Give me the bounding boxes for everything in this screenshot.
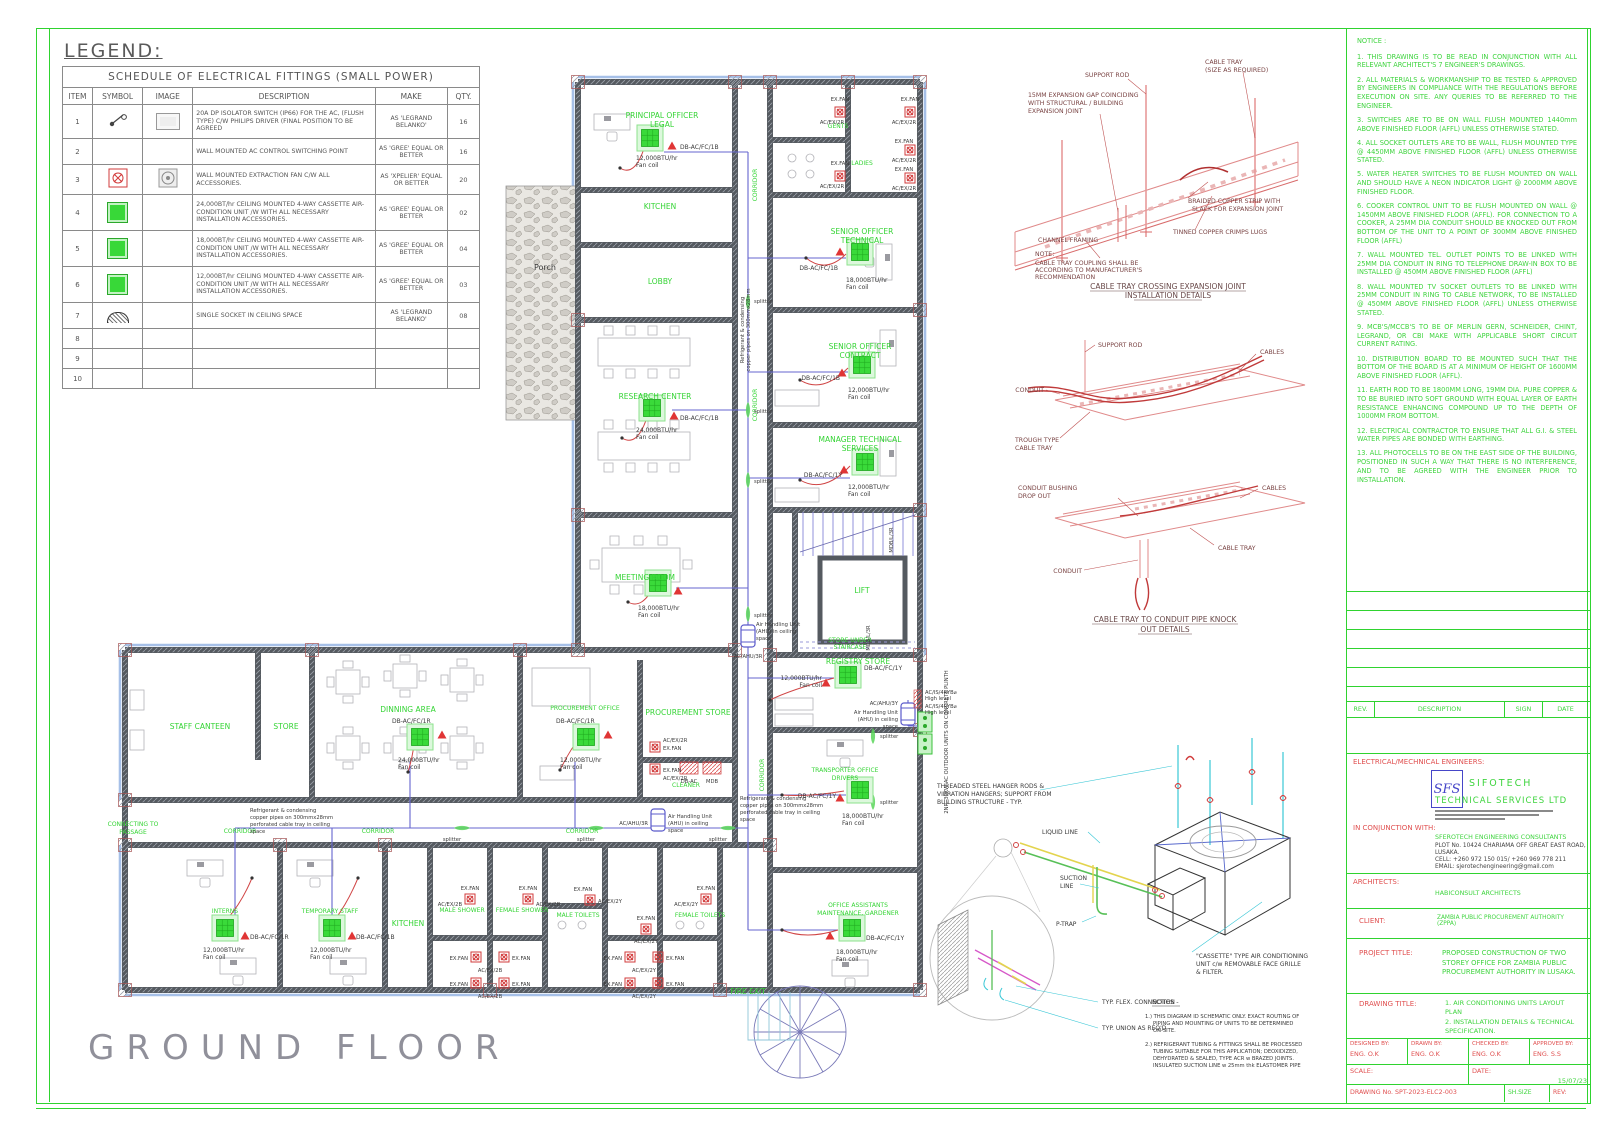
drawing-title-block: DRAWING TITLE: 1. AIR CONDITIONING UNITS… — [1347, 993, 1590, 1038]
room-label-connecting-2: PASSAGE — [119, 829, 147, 836]
d3-n1b: PIPING AND MOUNTING OF UNITS TO BE DETER… — [1153, 1021, 1293, 1027]
tag-splitter: splitter — [754, 479, 773, 485]
tag-acex: AC/EX/2R — [820, 120, 845, 126]
room-label-meeting: MEETING ROOM — [615, 573, 675, 582]
room-label-kitchen-bottom: KITCHEN — [392, 919, 425, 928]
tag-mdb-board: MDB — [706, 779, 718, 785]
tag-fancoil: Fan coil — [848, 491, 871, 498]
detail-cable-tray-expansion: SUPPORT ROD CABLE TRAY (SIZE AS REQUIRED… — [1015, 59, 1298, 300]
room-label-corridor-h3: CORRIDOR — [566, 828, 599, 835]
room-label-manager-1: MANAGER TECHNICAL — [819, 435, 903, 444]
tag-db: DB-AC/FC/1B — [680, 415, 719, 422]
tag-acex: AC/EX/2Y — [634, 939, 659, 945]
tag-btu: 18,000BTU/hr — [846, 277, 888, 284]
d2-cable-tray: CABLE TRAY — [1218, 545, 1256, 552]
architects-value: HABICONSULT ARCHITECTS — [1435, 890, 1521, 897]
tag-btu: 12,000BTU/hr — [310, 947, 352, 954]
tag-exfan: EX.FAN — [450, 956, 469, 962]
project-block: PROJECT TITLE: PROPOSED CONSTRUCTION OF … — [1347, 938, 1590, 993]
tag-mdb: MDB/L/3R — [866, 625, 872, 651]
tag-fancoil: Fan coil — [636, 162, 659, 169]
notice-item: 11. EARTH ROD TO BE 1800MM LONG, 19MM DI… — [1357, 386, 1577, 421]
isolator-switch-image — [156, 113, 180, 130]
notice-item: 2. ALL MATERIALS & WORKMANSHIP TO BE TES… — [1357, 76, 1577, 111]
tag-exfan: EX.FAN — [663, 768, 682, 774]
tag-fancoil: Fan coil — [846, 284, 869, 291]
tag-db: DB-AC/FC/1B — [356, 934, 395, 941]
tag-ahu-line: (AHU) in ceiling — [756, 629, 796, 635]
tag-btu: 24,000BTU/hr — [636, 427, 678, 434]
tag-splitter: splitter — [880, 800, 899, 806]
legend-row-7: 7 SINGLE SOCKET IN CEILING SPACE AS 'LEG… — [63, 303, 480, 329]
tag-btu: 18,000BTU/hr — [836, 949, 878, 956]
tag-ahu-ref: AC/AHU/3Y — [870, 701, 899, 707]
notice-title: NOTICE : — [1357, 37, 1577, 46]
engineers-fineprint-bar — [1435, 814, 1539, 816]
tag-ref-note: copper pipes on 300mmx28mm — [250, 815, 333, 821]
d1-braid1: BRAIDED COPPER STRIP WITH — [1188, 198, 1281, 205]
tag-acex: AC/EX/2B — [478, 994, 503, 1000]
title-block-column: NOTICE : 1. THIS DRAWING IS TO BE READ I… — [1346, 28, 1591, 1104]
d3-hanger3: BUILDING STRUCTURE - TYP. — [937, 799, 1022, 806]
d1-support-rod: SUPPORT ROD — [1085, 72, 1130, 79]
tag-ahu-line: Air Handling Unit — [668, 814, 712, 820]
tag-acex: AC/EX/2B — [478, 968, 503, 974]
d3-n2c: DEHYDRATED & SEALED, TYPE ACR w BRAZED J… — [1153, 1056, 1294, 1062]
d3-cassette1: "CASSETTE" TYPE AIR CONDITIONING — [1196, 953, 1308, 960]
tag-splitter: splitter — [709, 837, 728, 843]
d3-notes-title: NOTES - — [1152, 998, 1179, 1006]
tag-fancoil: Fan coil — [799, 682, 822, 689]
legend-col-make: MAKE — [375, 88, 447, 105]
room-label-senior-contract-2: CONTRACT — [839, 351, 880, 360]
tag-btu: 12,000BTU/hr — [781, 675, 823, 682]
staircase — [800, 512, 915, 648]
legend-col-symbol: SYMBOL — [93, 88, 143, 105]
room-label-female-shower: FEMALE SHOWER — [496, 907, 549, 914]
tag-exfan: EX.FAN — [450, 982, 469, 988]
consultant-address1: PLOT No. 10424 CHARIAMA OFF GREAT EAST R… — [1435, 843, 1586, 849]
d3-cassette2: UNIT c/w REMOVABLE FACE GRILLE — [1196, 961, 1301, 968]
scale-date-row: SCALE: DATE:15/07/23 — [1347, 1064, 1590, 1084]
tag-db: DB-AC/FC/1B — [799, 265, 838, 272]
room-label-corridor-v3: CORRIDOR — [759, 759, 766, 792]
tag-exfan: EX.FAN — [512, 982, 531, 988]
project-label: PROJECT TITLE: — [1359, 949, 1413, 957]
room-label-dinning: DINNING AREA — [380, 705, 436, 714]
room-label-female-toilets: FEMALE TOILETS — [675, 912, 726, 919]
d1-cable-tray: CABLE TRAY — [1205, 59, 1243, 66]
room-label-ladies: LADIES — [851, 160, 873, 167]
room-label-senior-contract-1: SENIOR OFFICER — [829, 342, 892, 351]
tag-acex: AC/EX/2R — [892, 186, 917, 192]
detail-cassette-unit: THREADED STEEL HANGER RODS & VIBRATION H… — [930, 738, 1308, 1069]
tag-ref-note: Refrigerant & condensing — [250, 808, 316, 814]
room-label-male-shower: MALE SHOWER — [439, 907, 484, 914]
tag-ref-note: space — [250, 829, 265, 835]
tag-db: DB-AC/FC/1B — [801, 375, 840, 382]
legend-row-9: 9 — [63, 349, 480, 369]
legend-col-image: IMAGE — [143, 88, 193, 105]
approved-by-label: APPROVED BY: — [1533, 1041, 1587, 1047]
notice-item: 1. THIS DRAWING IS TO BE READ IN CONJUNC… — [1357, 53, 1577, 70]
d1-gap3: EXPANSION JOINT — [1028, 108, 1083, 115]
drawing-title-2: 2. INSTALLATION DETAILS & TECHNICAL SPEC… — [1445, 1018, 1580, 1036]
checked-by-label: CHECKED BY: — [1472, 1041, 1526, 1047]
room-label-transporter-2: DRIVERS — [832, 775, 859, 782]
tag-fancoil: Fan coil — [310, 954, 333, 961]
detail1-labels: SUPPORT ROD CABLE TRAY (SIZE AS REQUIRED… — [1028, 59, 1283, 300]
room-label-senior-technical-1: SENIOR OFFICER — [831, 227, 894, 236]
d3-n2d: INSULATED SUCTION LINE w 25mm thk ELASTO… — [1153, 1063, 1301, 1069]
tag-exfan: EX.FAN — [604, 982, 623, 988]
description-col: DESCRIPTION — [1375, 702, 1505, 718]
tag-fancoil: Fan coil — [848, 394, 871, 401]
d3-n2b: TUBING SUITABLE FOR THIS APPLICATION; DE… — [1152, 1049, 1298, 1055]
tag-exfan: EX.FAN — [604, 956, 623, 962]
room-label-porch: Porch — [534, 263, 556, 272]
notice-item: 7. WALL MOUNTED TEL. OUTLET POINTS TO BE… — [1357, 251, 1577, 277]
legend-table-title: SCHEDULE OF ELECTRICAL FITTINGS (SMALL P… — [63, 67, 480, 88]
drawn-by-label: DRAWN BY: — [1411, 1041, 1465, 1047]
revision-rows — [1347, 591, 1590, 701]
tag-ref-note: Refrigerant & condensing — [740, 796, 806, 802]
detail3-labels: THREADED STEEL HANGER RODS & VIBRATION H… — [936, 783, 1308, 1069]
d1-cable-tray2: (SIZE AS REQUIRED) — [1205, 67, 1268, 74]
legend-row-1: 1 20A DP ISOLATOR SWITCH (IP66) FOR THE … — [63, 105, 480, 139]
tag-acex: AC/EX/2R — [663, 738, 688, 744]
tag-ahu-line: (AHU) in ceiling — [668, 821, 708, 827]
legend-row-4: 4 24,000BT/hr CEILING MOUNTED 4-WAY CASS… — [63, 195, 480, 231]
tag-ahu-ref: AC/AHU/3R — [619, 821, 648, 827]
tag-ahu-line: space — [756, 636, 771, 642]
tag-btu: 12,000BTU/hr — [848, 484, 890, 491]
tag-exfan: EX.FAN — [519, 886, 538, 892]
tag-exfan: EX.FAN — [697, 886, 716, 892]
tag-btu: 24,000BTU/hr — [398, 757, 440, 764]
tag-exfan: EX.FAN — [461, 886, 480, 892]
notice-item: 5. WATER HEATER SWITCHES TO BE FLUSH MOU… — [1357, 170, 1577, 196]
tag-fancoil: Fan coil — [398, 764, 421, 771]
tag-db: DB-AC/FC/1Y — [804, 472, 842, 479]
tag-acex: AC/EX/2B — [438, 902, 463, 908]
tag-acex: AC/EX/2B — [536, 902, 561, 908]
room-label-canteen: STAFF CANTEEN — [170, 722, 231, 731]
tag-exfan: EX.FAN — [574, 887, 593, 893]
tag-ahu-line: Air Handling Unit — [854, 710, 898, 716]
drawing-title-1: 1. AIR CONDITIONING UNITS LAYOUT PLAN — [1445, 999, 1580, 1017]
room-label-lobby: LOBBY — [648, 277, 673, 286]
tag-btu: 18,000BTU/hr — [638, 605, 680, 612]
tag-splitter: splitter — [880, 734, 899, 740]
d1-title1: CABLE TRAY CROSSING EXPANSION JOINT — [1090, 282, 1246, 291]
tag-db: DB-AC/FC/1Y — [864, 665, 902, 672]
notice-item: 6. COOKER CONTROL UNIT TO BE FLUSH MOUNT… — [1357, 202, 1577, 246]
d2-trough2: CABLE TRAY — [1015, 445, 1053, 452]
approved-by-value: ENG. S.S — [1533, 1050, 1587, 1058]
tag-acex: AC/EX/2R — [892, 120, 917, 126]
tag-ref-note-v: copper pipes on 300mmx28mm — [746, 288, 752, 371]
engineers-block: ELECTRICAL/MECHNICAL ENGINEERS: SFS SIFO… — [1347, 753, 1590, 873]
rev-label: REV: — [1553, 1089, 1587, 1096]
tag-btu: 12,000BTU/hr — [560, 757, 602, 764]
drawing-no-row: DRAWING No. SPT-2023-ELC2-003 SH.SIZE RE… — [1347, 1084, 1590, 1102]
d1-gap2: WITH STRUCTURAL / BUILDING — [1028, 100, 1124, 107]
tag-ahu-line: space — [668, 828, 683, 834]
d3-suction2: LINE — [1060, 883, 1074, 890]
client-value: ZAMBIA PUBLIC PROCUREMENT AUTHORITY (ZPP… — [1437, 915, 1582, 927]
designed-by-value: ENG. O.K — [1350, 1050, 1404, 1058]
tag-exfan: EX.FAN — [512, 956, 531, 962]
legend: LEGEND: SCHEDULE OF ELECTRICAL FITTINGS … — [62, 40, 480, 389]
sheet-size-label: SH.SIZE — [1508, 1089, 1546, 1096]
room-label-corridor-h2: CORRIDOR — [362, 828, 395, 835]
d3-hanger2: VIBRATION HANGERS; SUPPORT FROM — [937, 791, 1052, 798]
tag-db: DB-AC/FC/1B — [680, 144, 719, 151]
tag-exfan: EX.FAN — [666, 956, 685, 962]
room-label-lift: LIFT — [854, 586, 870, 595]
tag-ref-note: perforated cable tray in ceiling — [250, 822, 330, 828]
d2-cables: CABLES — [1260, 349, 1284, 356]
d2-conduit2: CONDUIT — [1053, 568, 1082, 575]
ceiling-socket-icon — [107, 312, 129, 323]
notice-item: 8. WALL MOUNTED TV SOCKET OUTLETS TO BE … — [1357, 283, 1577, 318]
legend-row-3: 3 WALL MOUNTED EXTRACTION FAN C/W ALL AC… — [63, 165, 480, 195]
engineers-name1: SIFOTECH — [1469, 778, 1532, 789]
d2-cables2: CABLES — [1262, 485, 1286, 492]
tag-exfan: EX.FAN — [831, 161, 850, 167]
architects-label: ARCHITECTS: — [1353, 878, 1399, 886]
legend-table: SCHEDULE OF ELECTRICAL FITTINGS (SMALL P… — [62, 66, 480, 389]
d3-hanger1: THREADED STEEL HANGER RODS & — [936, 783, 1044, 790]
tag-acex: AC/EX/2R — [820, 184, 845, 190]
legend-row-5: 5 18,000BT/hr CEILING MOUNTED 4-WAY CASS… — [63, 231, 480, 267]
conjunction-label: IN CONJUNCTION WITH: — [1353, 824, 1436, 832]
tag-acex: AC/EX/2Y — [632, 968, 657, 974]
tag-exfan: EX.FAN — [901, 97, 920, 103]
notice-item: 4. ALL SOCKET OUTLETS ARE TO BE WALL, FL… — [1357, 139, 1577, 165]
room-label-temp-staff: TEMPORARY STAFF — [301, 908, 359, 915]
client-block: CLIENT: ZAMBIA PUBLIC PROCUREMENT AUTHOR… — [1347, 908, 1590, 938]
legend-row-6: 6 12,000BT/hr CEILING MOUNTED 4-WAY CASS… — [63, 267, 480, 303]
porch-stonework — [506, 186, 578, 420]
tag-splitter: splitter — [754, 299, 773, 305]
tag-btu: 12,000BTU/hr — [848, 387, 890, 394]
engineers-fineprint-bar — [1435, 818, 1505, 820]
consultant-cell: CELL: +260 972 150 015/ +260 969 778 211 — [1435, 857, 1566, 863]
d2-bush1: CONDUIT BUSHING — [1018, 485, 1077, 492]
legend-row-10: 10 — [63, 369, 480, 389]
room-label-connecting-1: CONNECTING TO — [108, 821, 159, 828]
tag-exfan: EX.FAN — [895, 167, 914, 173]
designed-by-label: DESIGNED BY: — [1350, 1041, 1404, 1047]
tag-exfan: EX.FAN — [666, 982, 685, 988]
d3-suction1: SUCTION — [1060, 875, 1087, 882]
cassette-24k-icon — [108, 203, 127, 222]
sign-col: SIGN — [1505, 702, 1543, 718]
room-label-store-stair-2: STAIRCASE — [834, 644, 867, 651]
tag-db: DB-AC/FC/1R — [392, 718, 431, 725]
d3-n1a: 1.) THIS DIAGRAM ID SCHEMATIC ONLY. EXAC… — [1145, 1014, 1299, 1020]
d3-n1c: ON-SITE. — [1153, 1028, 1176, 1034]
tag-btu: 18,000BTU/hr — [842, 813, 884, 820]
tag-splitter: splitter — [443, 837, 462, 843]
tag-exfan: EX.FAN — [663, 746, 682, 752]
legend-title: LEGEND: — [64, 40, 480, 62]
tag-splitter: splitter — [754, 409, 773, 415]
notice-item: 3. SWITCHES ARE TO BE ON WALL FLUSH MOUN… — [1357, 116, 1577, 133]
revision-empty — [1347, 717, 1590, 753]
tag-db: DB-AC/FC/1R — [556, 718, 595, 725]
tag-fancoil: Fan coil — [836, 956, 859, 963]
date-col: DATE — [1543, 702, 1588, 718]
scale-label: SCALE: — [1350, 1067, 1465, 1075]
date-label: DATE: — [1472, 1067, 1587, 1075]
d1-lugs: TINNED COPPER CRIMPS LUGS — [1172, 229, 1267, 236]
room-label-fire-exit: FIRE EXIT — [730, 987, 766, 996]
tag-fancoil: Fan coil — [636, 434, 659, 441]
d2-conduit: CONDUIT — [1015, 387, 1044, 394]
tag-btu: 12,000BTU/hr — [203, 947, 245, 954]
isolator-switch-icon — [107, 112, 129, 128]
room-label-office-assist-1: OFFICE ASSISTANTS — [828, 902, 888, 909]
d2-trough1: TROUGH TYPE — [1014, 437, 1059, 444]
architects-block: ARCHITECTS: HABICONSULT ARCHITECTS — [1347, 873, 1590, 908]
d2-bush2: DROP OUT — [1018, 493, 1051, 500]
d2-title1: CABLE TRAY TO CONDUIT PIPE KNOCK — [1094, 615, 1238, 624]
tag-fancoil: Fan coil — [203, 954, 226, 961]
room-label-interns: INTERNS — [212, 908, 238, 915]
lift-shaft — [820, 558, 905, 642]
legend-row-2: 2 WALL MOUNTED AC CONTROL SWITCHING POIN… — [63, 139, 480, 165]
drawing-title-label: DRAWING TITLE: — [1359, 1000, 1417, 1008]
room-label-principal-1: PRINCIPAL OFFICER — [626, 111, 699, 120]
notice-item: 13. ALL PHOTOCELLS TO BE ON THE EAST SID… — [1357, 449, 1577, 484]
engineers-label: ELECTRICAL/MECHNICAL ENGINEERS: — [1353, 758, 1484, 766]
tag-fancoil: Fan coil — [560, 764, 583, 771]
room-label-senior-technical-2: TECHNICAL — [840, 236, 884, 245]
tag-acex: AC/EX/2Y — [632, 994, 657, 1000]
room-label-research: RESEARCH CENTER — [619, 392, 692, 401]
tag-exfan: EX.FAN — [831, 97, 850, 103]
tag-splitter: splitter — [577, 837, 596, 843]
tag-ref-note: space — [740, 817, 755, 823]
cassette-18k-icon — [108, 239, 127, 258]
legend-row-8: 8 — [63, 329, 480, 349]
room-label-principal-2: LEGAL — [650, 120, 675, 129]
consultant-address2: LUSAKA. — [1435, 850, 1459, 856]
d2-title2: OUT DETAILS — [1140, 625, 1189, 634]
room-label-procurement-office: PROCUREMENT OFFICE — [550, 705, 620, 712]
d1-channel: CHANNEL FRAMING — [1038, 237, 1098, 244]
drawn-by-value: ENG. O.K — [1411, 1050, 1465, 1058]
consultant-name: SFEROTECH ENGINEERING CONSULTANTS — [1435, 834, 1566, 841]
tag-exfan: EX.FAN — [895, 139, 914, 145]
d1-note2: ACCORDING TO MANUFACTURER'S — [1035, 267, 1142, 274]
consultant-email: EMAIL: sjerotechengineering@gmail.com — [1435, 864, 1554, 870]
d2-support-rod: SUPPORT ROD — [1098, 342, 1143, 349]
d3-cassette3: & FILTER. — [1196, 969, 1224, 976]
drawing-sheet: PRINCIPAL OFFICER LEGAL KITCHEN LOBBY GE… — [0, 0, 1600, 1130]
d1-braid2: SLACK FOR EXPANSION JOINT — [1192, 206, 1283, 213]
tag-ref-note: copper pipes on 300mmx28mm — [740, 803, 823, 809]
notice-block: NOTICE : 1. THIS DRAWING IS TO BE READ I… — [1357, 37, 1577, 490]
detail-cable-tray-conduit: SUPPORT ROD CABLES CONDUIT TROUGH TYPE C… — [1014, 340, 1305, 634]
project-value: PROPOSED CONSTRUCTION OF TWO STOREY OFFI… — [1442, 949, 1580, 978]
tag-fancoil: Fan coil — [638, 612, 661, 619]
tag-acex: AC/EX/2R — [892, 158, 917, 164]
notice-item: 9. MCB'S/MCCB'S TO BE OF MERLIN GERN, SC… — [1357, 323, 1577, 349]
tag-acex: AC/EX/2Y — [674, 902, 699, 908]
tag-ahu-line: space — [883, 724, 898, 730]
tag-ahu-line: (AHU) in ceiling — [858, 717, 898, 723]
tag-splitter: splitter — [754, 613, 773, 619]
d1-note1: CABLE TRAY COUPLING SHALL BE — [1035, 260, 1138, 267]
notice-item: 12. ELECTRICAL CONTRACTOR TO ENSURE THAT… — [1357, 427, 1577, 444]
d1-note3: RECOMMENDATION — [1035, 274, 1095, 281]
tag-exfan: EX.FAN — [637, 916, 656, 922]
room-label-procurement-store: PROCUREMENT STORE — [645, 708, 731, 717]
notice-item: 10. DISTRIBUTION BOARD TO BE MOUNTED SUC… — [1357, 355, 1577, 381]
extraction-fan-image — [158, 168, 178, 188]
rev-col: REV. — [1347, 702, 1375, 718]
room-label-male-toilets: MALE TOILETS — [556, 912, 599, 919]
checked-by-value: ENG. O.K — [1472, 1050, 1526, 1058]
room-label-store: STORE — [273, 722, 298, 731]
tag-acex: AC/EX/2Y — [598, 899, 623, 905]
d1-note-title: NOTE: — [1035, 251, 1054, 258]
tag-btu: 12,000BTU/hr — [636, 155, 678, 162]
tag-dbac: DB-AC — [681, 779, 698, 785]
tag-mdb: MDB/L/3R — [889, 527, 895, 553]
legend-col-qty: QTY. — [447, 88, 479, 105]
room-label-corridor-v2: CORRIDOR — [752, 389, 759, 422]
d3-n2a: 2.) REFRIGERANT TUBING & FITTINGS SHALL … — [1145, 1042, 1302, 1048]
engineers-fineprint-bar — [1435, 810, 1553, 812]
d1-title2: INSTALLATION DETAILS — [1125, 291, 1212, 300]
room-label-kitchen-top: KITCHEN — [644, 202, 677, 211]
tag-ref-note: perforated cable tray in ceiling — [740, 810, 820, 816]
engineers-name2: TECHNICAL SERVICES LTD — [1435, 796, 1567, 806]
room-label-transporter-1: TRANSPORTER OFFICE — [811, 767, 879, 774]
room-label-manager-2: SERVICES — [842, 444, 879, 453]
tag-db: DB-AC/FC/1Y — [866, 935, 904, 942]
spiral-stair — [748, 986, 846, 1078]
tag-ahu-ref: AC/AHU/3R — [734, 654, 763, 660]
extraction-fan-icon — [108, 168, 128, 188]
signature-row: DESIGNED BY:ENG. O.K DRAWN BY:ENG. O.K C… — [1347, 1038, 1590, 1064]
room-label-corridor-v1: CORRIDOR — [752, 169, 759, 202]
drawing-no: DRAWING No. SPT-2023-ELC2-003 — [1350, 1089, 1501, 1096]
revision-header: REV. DESCRIPTION SIGN DATE — [1347, 701, 1590, 717]
cassette-12k-icon — [108, 275, 127, 294]
d3-ptrap: P-TRAP — [1056, 921, 1077, 928]
floor-title: GROUND FLOOR — [88, 1028, 510, 1068]
tag-fancoil: Fan coil — [842, 820, 865, 827]
tag-ahu-line: Air Handling Unit — [756, 622, 800, 628]
distribution-boards — [680, 762, 721, 774]
tag-db: DB-AC/FC/1R — [250, 934, 289, 941]
d1-gap1: 15MM EXPANSION GAP COINCIDING — [1028, 92, 1139, 99]
legend-col-item: ITEM — [63, 88, 93, 105]
d3-liquid: LIQUID LINE — [1042, 829, 1078, 836]
room-label-office-assist-2: MAINTENANCE, GARDENER — [817, 910, 899, 917]
legend-col-description: DESCRIPTION — [193, 88, 375, 105]
client-label: CLIENT: — [1359, 917, 1385, 925]
